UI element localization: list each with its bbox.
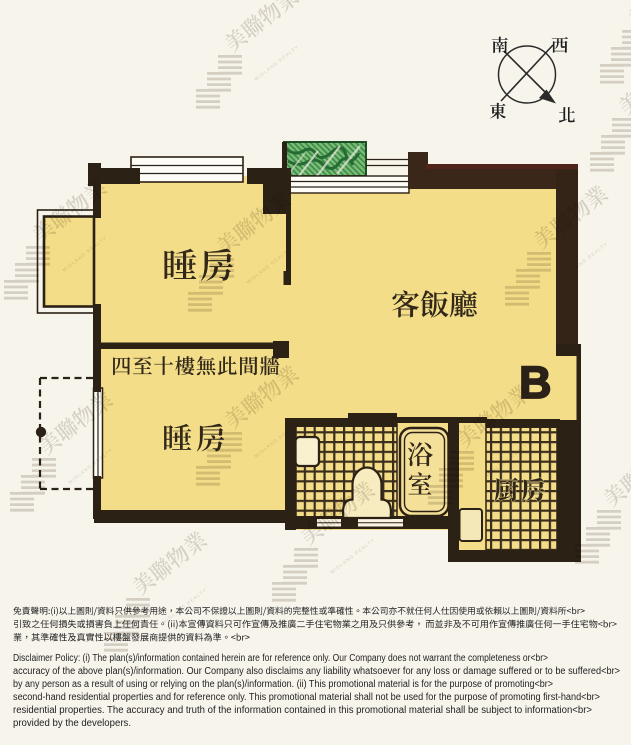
svg-text:residential properties. The ac: residential properties. The accuracy and…	[13, 705, 592, 716]
svg-text:accuracy of the above plan(s)/: accuracy of the above plan(s)/informatio…	[13, 666, 620, 677]
svg-text:provided by the developers.: provided by the developers.	[13, 718, 131, 729]
svg-text:second-hand residential proper: second-hand residential properties and f…	[13, 692, 600, 703]
svg-text:Disclaimer Policy: (i) The pla: Disclaimer Policy: (i) The plan(s)/infor…	[13, 653, 548, 664]
svg-text:B: B	[519, 357, 552, 408]
svg-text:by any person as a result of u: by any person as a result of using or re…	[13, 679, 553, 690]
